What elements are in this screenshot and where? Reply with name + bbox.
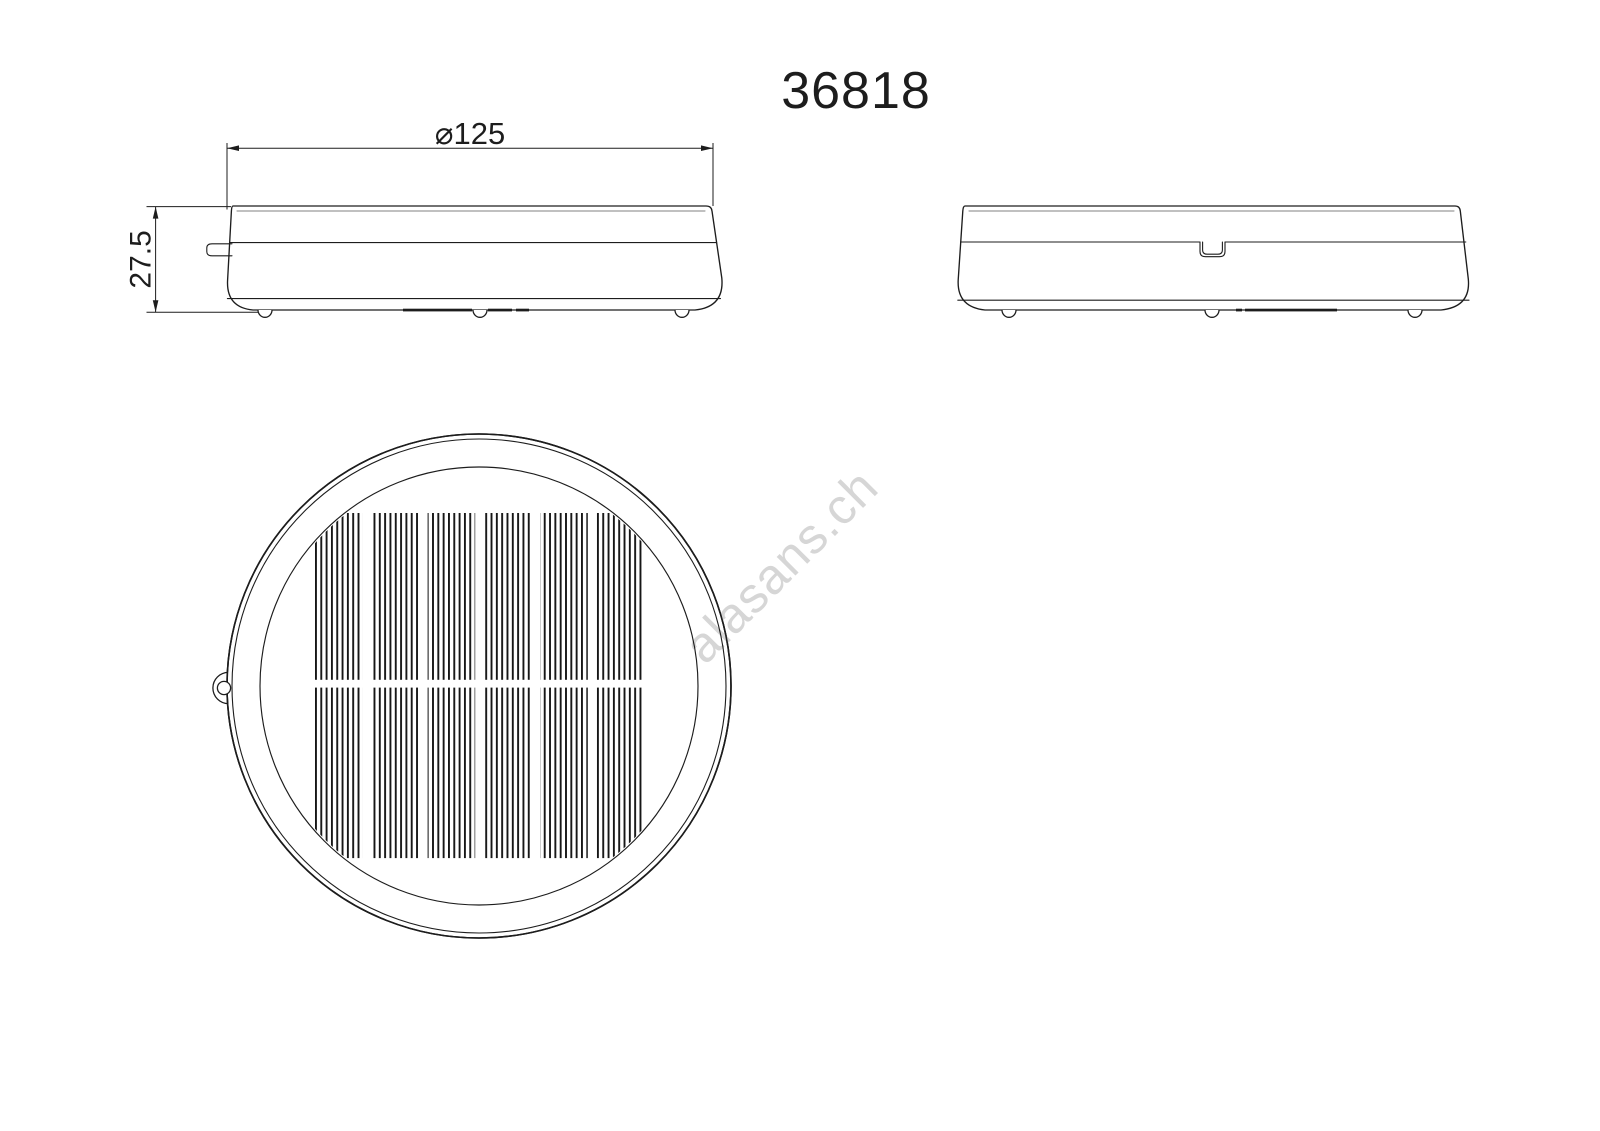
diameter-dimension-label: ⌀125 (435, 116, 505, 151)
height-dimension-label: 27.5 (125, 230, 158, 288)
arrowhead-bottom (153, 300, 159, 312)
solar-cell (484, 688, 532, 859)
dimension-height: 27.5 (125, 207, 272, 313)
dimension-diameter: ⌀125 (227, 116, 713, 210)
foot-middle (1205, 310, 1219, 317)
solar-cell (484, 513, 532, 680)
top-view-circular (213, 434, 731, 938)
outer-bezel-circle-fill (227, 434, 731, 938)
watermark: alasans.ch (673, 458, 889, 674)
solar-cell (315, 513, 363, 680)
solar-cell (597, 513, 645, 680)
foot-middle (473, 310, 487, 317)
lug-hole (217, 681, 230, 694)
technical-drawing: 36818 ⌀125 27.5 (0, 0, 1600, 1131)
solar-cell (597, 688, 645, 859)
vent-slot (1236, 309, 1242, 312)
solar-cell (428, 688, 476, 859)
foot-left (258, 310, 272, 317)
vent-slot (516, 309, 529, 312)
arrowhead-left (227, 145, 239, 151)
foot-right (1408, 310, 1422, 317)
foot-left (1002, 310, 1016, 317)
mounting-tab-side (207, 244, 232, 256)
vent-slot (1245, 309, 1337, 312)
solar-cell (428, 513, 476, 680)
drawing-canvas: 36818 ⌀125 27.5 (0, 0, 1600, 1131)
housing-outline (228, 206, 723, 310)
arrowhead-top (153, 207, 159, 219)
foot-right (675, 310, 689, 317)
solar-cell (540, 513, 588, 680)
vent-slot (403, 309, 472, 312)
drawing-number: 36818 (781, 62, 931, 120)
solar-cell (371, 688, 419, 859)
mounting-clip-inner-line (1203, 242, 1223, 254)
solar-cell (540, 688, 588, 859)
solar-cell (371, 513, 419, 680)
arrowhead-right (701, 145, 713, 151)
side-view-right (958, 206, 1469, 317)
housing-outline (958, 206, 1468, 310)
side-view-left (207, 206, 722, 317)
vent-slot (488, 309, 512, 312)
solar-cell (315, 688, 363, 859)
